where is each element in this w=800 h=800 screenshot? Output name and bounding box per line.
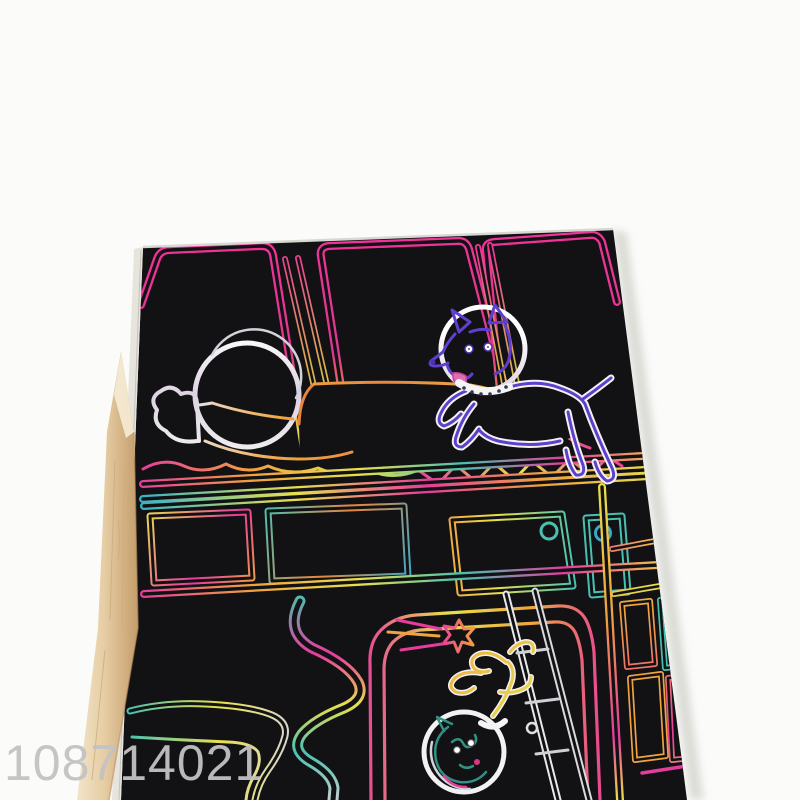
scratch-card — [112, 229, 690, 800]
scratch-artwork — [121, 229, 690, 800]
product-photo — [0, 0, 800, 800]
watermark: 108714021 — [4, 736, 263, 791]
screenshot-root: 108714021 — [0, 0, 800, 800]
